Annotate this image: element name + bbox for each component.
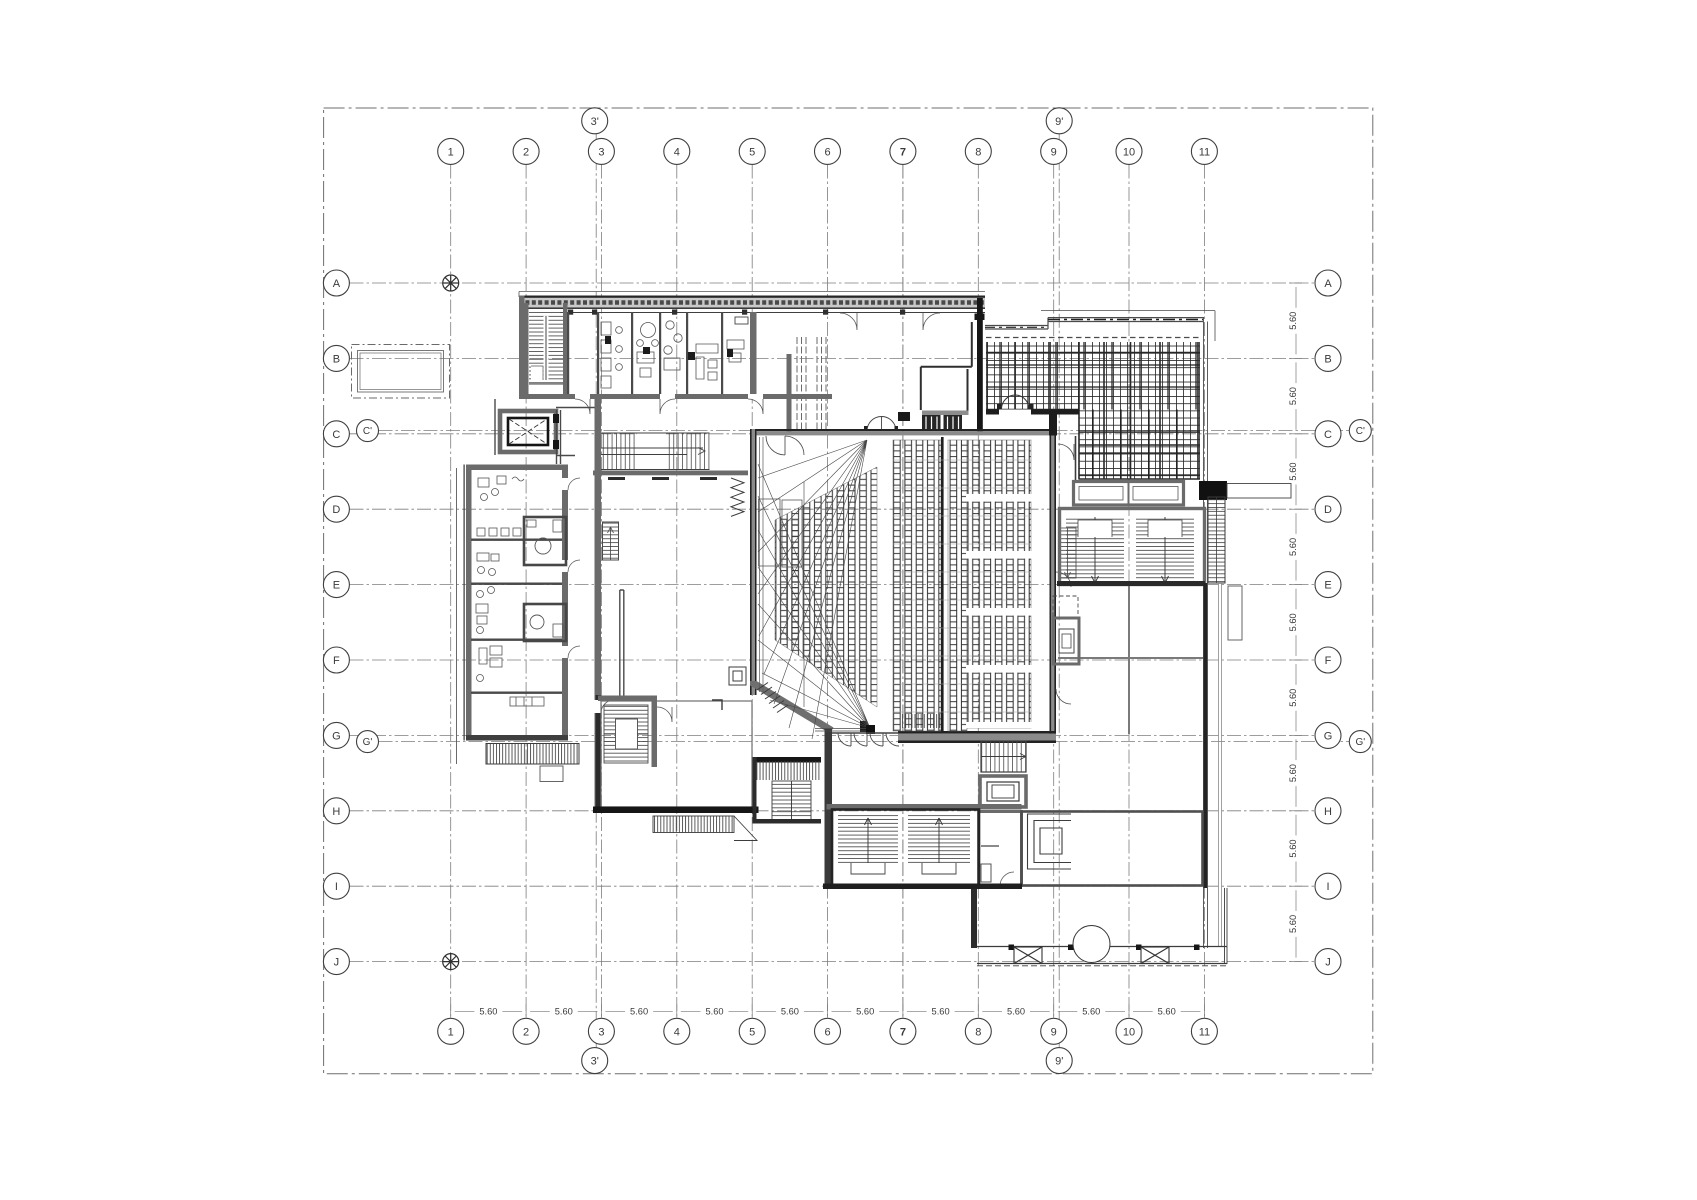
- svg-text:7: 7: [900, 1026, 906, 1038]
- svg-text:C': C': [1356, 426, 1365, 437]
- svg-text:5.60: 5.60: [1288, 839, 1298, 857]
- svg-text:5.60: 5.60: [1288, 613, 1298, 631]
- svg-text:5.60: 5.60: [1288, 462, 1298, 480]
- svg-text:B: B: [1324, 353, 1331, 365]
- svg-text:5.60: 5.60: [1288, 689, 1298, 707]
- svg-text:5.60: 5.60: [1288, 915, 1298, 933]
- svg-text:7: 7: [900, 146, 906, 158]
- svg-text:G: G: [1324, 730, 1333, 742]
- svg-text:F: F: [1325, 655, 1332, 667]
- svg-text:J: J: [334, 957, 340, 969]
- svg-text:11: 11: [1199, 1026, 1210, 1038]
- svg-text:5.60: 5.60: [932, 1007, 950, 1017]
- svg-text:G': G': [1355, 737, 1365, 748]
- svg-text:4: 4: [674, 1026, 680, 1038]
- svg-text:5.60: 5.60: [1288, 387, 1298, 405]
- svg-text:5.60: 5.60: [1007, 1007, 1025, 1017]
- svg-text:2: 2: [523, 1026, 529, 1038]
- svg-text:3: 3: [598, 1026, 604, 1038]
- svg-text:5.60: 5.60: [1288, 312, 1298, 330]
- svg-text:5.60: 5.60: [630, 1007, 648, 1017]
- svg-text:9': 9': [1055, 116, 1063, 128]
- svg-text:5.60: 5.60: [856, 1007, 874, 1017]
- svg-text:E: E: [333, 580, 340, 592]
- svg-text:5.60: 5.60: [479, 1007, 497, 1017]
- svg-text:10: 10: [1123, 146, 1135, 158]
- svg-text:8: 8: [975, 1026, 981, 1038]
- svg-text:C': C': [363, 426, 372, 437]
- svg-text:E: E: [1324, 580, 1331, 592]
- svg-text:I: I: [1326, 881, 1329, 893]
- svg-text:4: 4: [674, 146, 680, 158]
- svg-text:11: 11: [1199, 146, 1210, 158]
- svg-text:6: 6: [824, 1026, 830, 1038]
- svg-text:A: A: [333, 278, 341, 290]
- svg-text:A: A: [1324, 278, 1332, 290]
- svg-text:F: F: [333, 655, 340, 667]
- svg-text:C: C: [1324, 429, 1332, 441]
- svg-text:9: 9: [1051, 146, 1057, 158]
- svg-text:5.60: 5.60: [1082, 1007, 1100, 1017]
- svg-text:I: I: [335, 881, 338, 893]
- svg-text:5.60: 5.60: [1288, 764, 1298, 782]
- svg-text:B: B: [333, 353, 340, 365]
- svg-text:5: 5: [749, 146, 755, 158]
- svg-text:3': 3': [591, 1056, 599, 1068]
- svg-text:H: H: [1324, 806, 1332, 818]
- svg-text:C: C: [332, 429, 340, 441]
- svg-text:5.60: 5.60: [1158, 1007, 1176, 1017]
- svg-text:9': 9': [1055, 1056, 1063, 1068]
- svg-text:5.60: 5.60: [705, 1007, 723, 1017]
- svg-text:9: 9: [1051, 1026, 1057, 1038]
- svg-text:D: D: [1324, 504, 1332, 516]
- svg-text:G': G': [363, 737, 373, 748]
- svg-text:10: 10: [1123, 1026, 1135, 1038]
- svg-text:5.60: 5.60: [1288, 538, 1298, 556]
- svg-text:3': 3': [591, 116, 599, 128]
- svg-text:5.60: 5.60: [781, 1007, 799, 1017]
- svg-text:5.60: 5.60: [555, 1007, 573, 1017]
- svg-text:D: D: [332, 504, 340, 516]
- svg-text:3: 3: [598, 146, 604, 158]
- svg-text:6: 6: [824, 146, 830, 158]
- svg-text:H: H: [332, 806, 340, 818]
- svg-text:1: 1: [448, 1026, 454, 1038]
- svg-text:1: 1: [448, 146, 454, 158]
- svg-text:5: 5: [749, 1026, 755, 1038]
- svg-text:G: G: [332, 730, 341, 742]
- svg-text:8: 8: [975, 146, 981, 158]
- svg-text:J: J: [1325, 957, 1331, 969]
- svg-text:2: 2: [523, 146, 529, 158]
